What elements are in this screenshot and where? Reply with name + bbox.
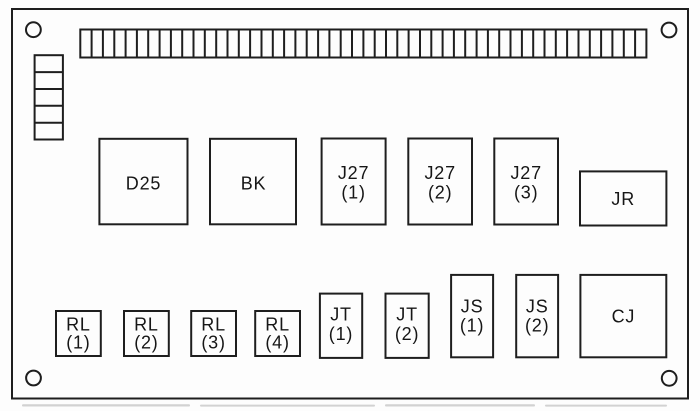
svg-text:RL: RL — [265, 315, 290, 335]
svg-text:JR: JR — [611, 189, 635, 209]
svg-text:J27: J27 — [424, 163, 455, 183]
svg-text:JT: JT — [330, 305, 352, 325]
svg-text:D25: D25 — [126, 174, 161, 194]
svg-text:BK: BK — [241, 174, 267, 194]
svg-text:(1): (1) — [460, 316, 484, 336]
svg-text:RL: RL — [134, 315, 159, 335]
svg-text:JS: JS — [461, 297, 484, 317]
svg-text:(2): (2) — [428, 183, 452, 203]
svg-text:(1): (1) — [66, 333, 90, 353]
svg-text:(2): (2) — [395, 324, 419, 344]
svg-text:(2): (2) — [525, 316, 549, 336]
svg-text:RL: RL — [66, 315, 91, 335]
svg-text:J27: J27 — [338, 163, 369, 183]
svg-text:JS: JS — [526, 297, 549, 317]
svg-text:(1): (1) — [341, 183, 365, 203]
svg-text:(3): (3) — [201, 333, 225, 353]
svg-text:(4): (4) — [265, 333, 289, 353]
svg-text:(3): (3) — [514, 183, 538, 203]
svg-text:JT: JT — [396, 305, 418, 325]
svg-text:CJ: CJ — [612, 307, 636, 327]
svg-text:J27: J27 — [510, 163, 541, 183]
svg-text:RL: RL — [201, 315, 226, 335]
svg-text:(1): (1) — [329, 324, 353, 344]
svg-text:(2): (2) — [134, 333, 158, 353]
